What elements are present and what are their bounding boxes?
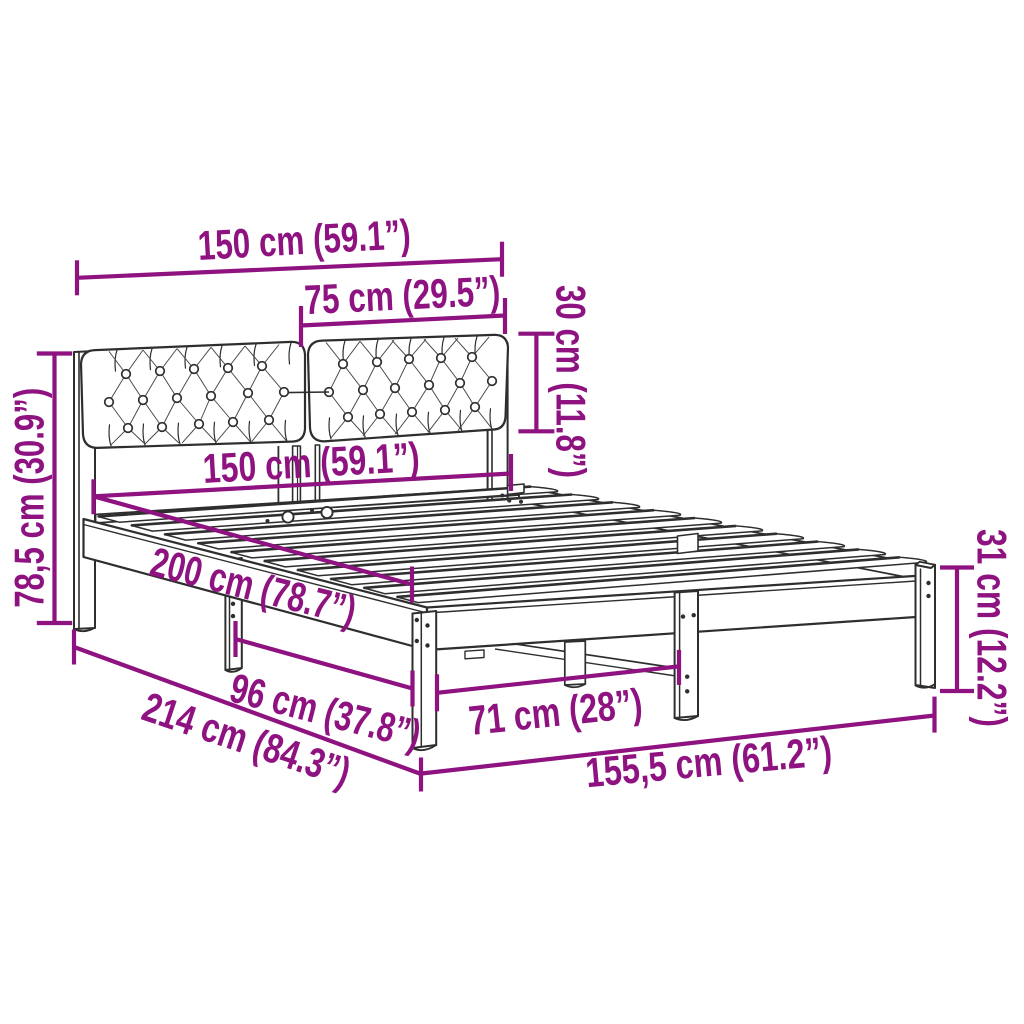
svg-text:75 cm (29.5”): 75 cm (29.5”) xyxy=(303,267,501,324)
svg-text:78,5 cm (30.9”): 78,5 cm (30.9”) xyxy=(6,388,53,608)
svg-text:30 cm (11.8”): 30 cm (11.8”) xyxy=(548,285,595,478)
svg-text:31 cm (12.2”): 31 cm (12.2”) xyxy=(969,529,1016,727)
